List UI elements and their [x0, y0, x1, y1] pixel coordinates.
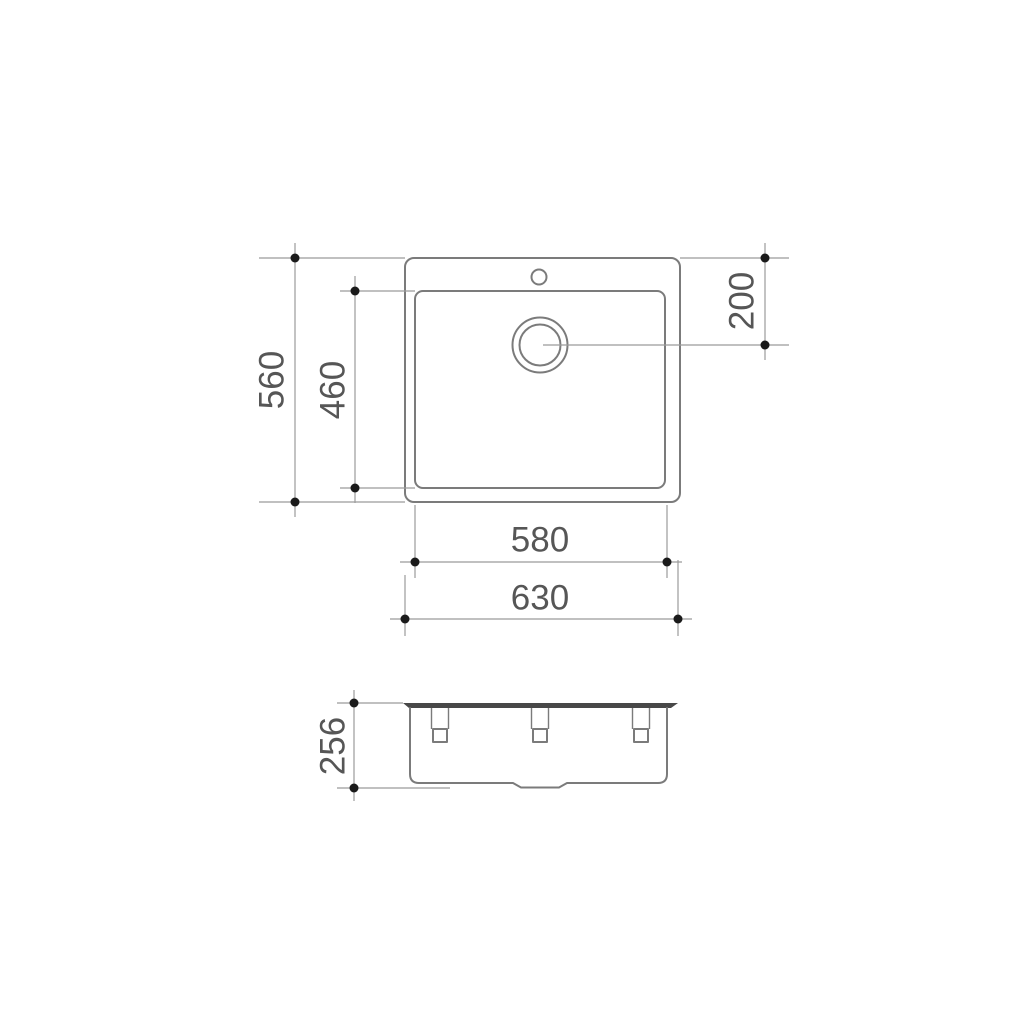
- sink-rim-profile: [403, 703, 678, 708]
- dimension-dot: [351, 484, 360, 493]
- mounting-clip: [432, 708, 449, 742]
- dimension-dot: [411, 558, 420, 567]
- sink-outer-edge: [405, 258, 680, 502]
- dim-overall-width: 630: [390, 560, 692, 636]
- dim-bowl-depth: 460: [314, 276, 416, 503]
- dimension-dot: [291, 254, 300, 263]
- sink-technical-drawing: 560 460 200 580: [0, 0, 1024, 1024]
- clip-foot: [433, 729, 447, 742]
- dim-label-bowl-width: 580: [511, 521, 569, 560]
- dimension-dot: [761, 341, 770, 350]
- dim-label-overall-height: 256: [314, 717, 353, 775]
- dimension-dot: [350, 784, 359, 793]
- clip-foot: [634, 729, 648, 742]
- dimension-dot: [351, 287, 360, 296]
- dimension-dot: [761, 254, 770, 263]
- dimension-dot: [663, 558, 672, 567]
- dim-bowl-width: 580: [400, 505, 682, 578]
- side-view: [403, 703, 678, 788]
- dim-label-overall-depth: 560: [253, 351, 292, 409]
- dim-label-bowl-depth: 460: [314, 361, 353, 419]
- dim-label-overall-width: 630: [511, 579, 569, 618]
- mounting-clip: [633, 708, 650, 742]
- dimension-dot: [350, 699, 359, 708]
- dimension-dot: [291, 498, 300, 507]
- drawing-svg: 560 460 200 580: [0, 0, 1024, 1024]
- bowl-edge: [415, 291, 665, 488]
- dimension-dot: [401, 615, 410, 624]
- dim-drain-offset: 200: [680, 243, 789, 360]
- dimension-dot: [674, 615, 683, 624]
- clip-foot: [533, 729, 547, 742]
- dim-label-drain-offset: 200: [723, 272, 762, 330]
- mounting-clip: [532, 708, 549, 742]
- tap-hole: [532, 270, 547, 285]
